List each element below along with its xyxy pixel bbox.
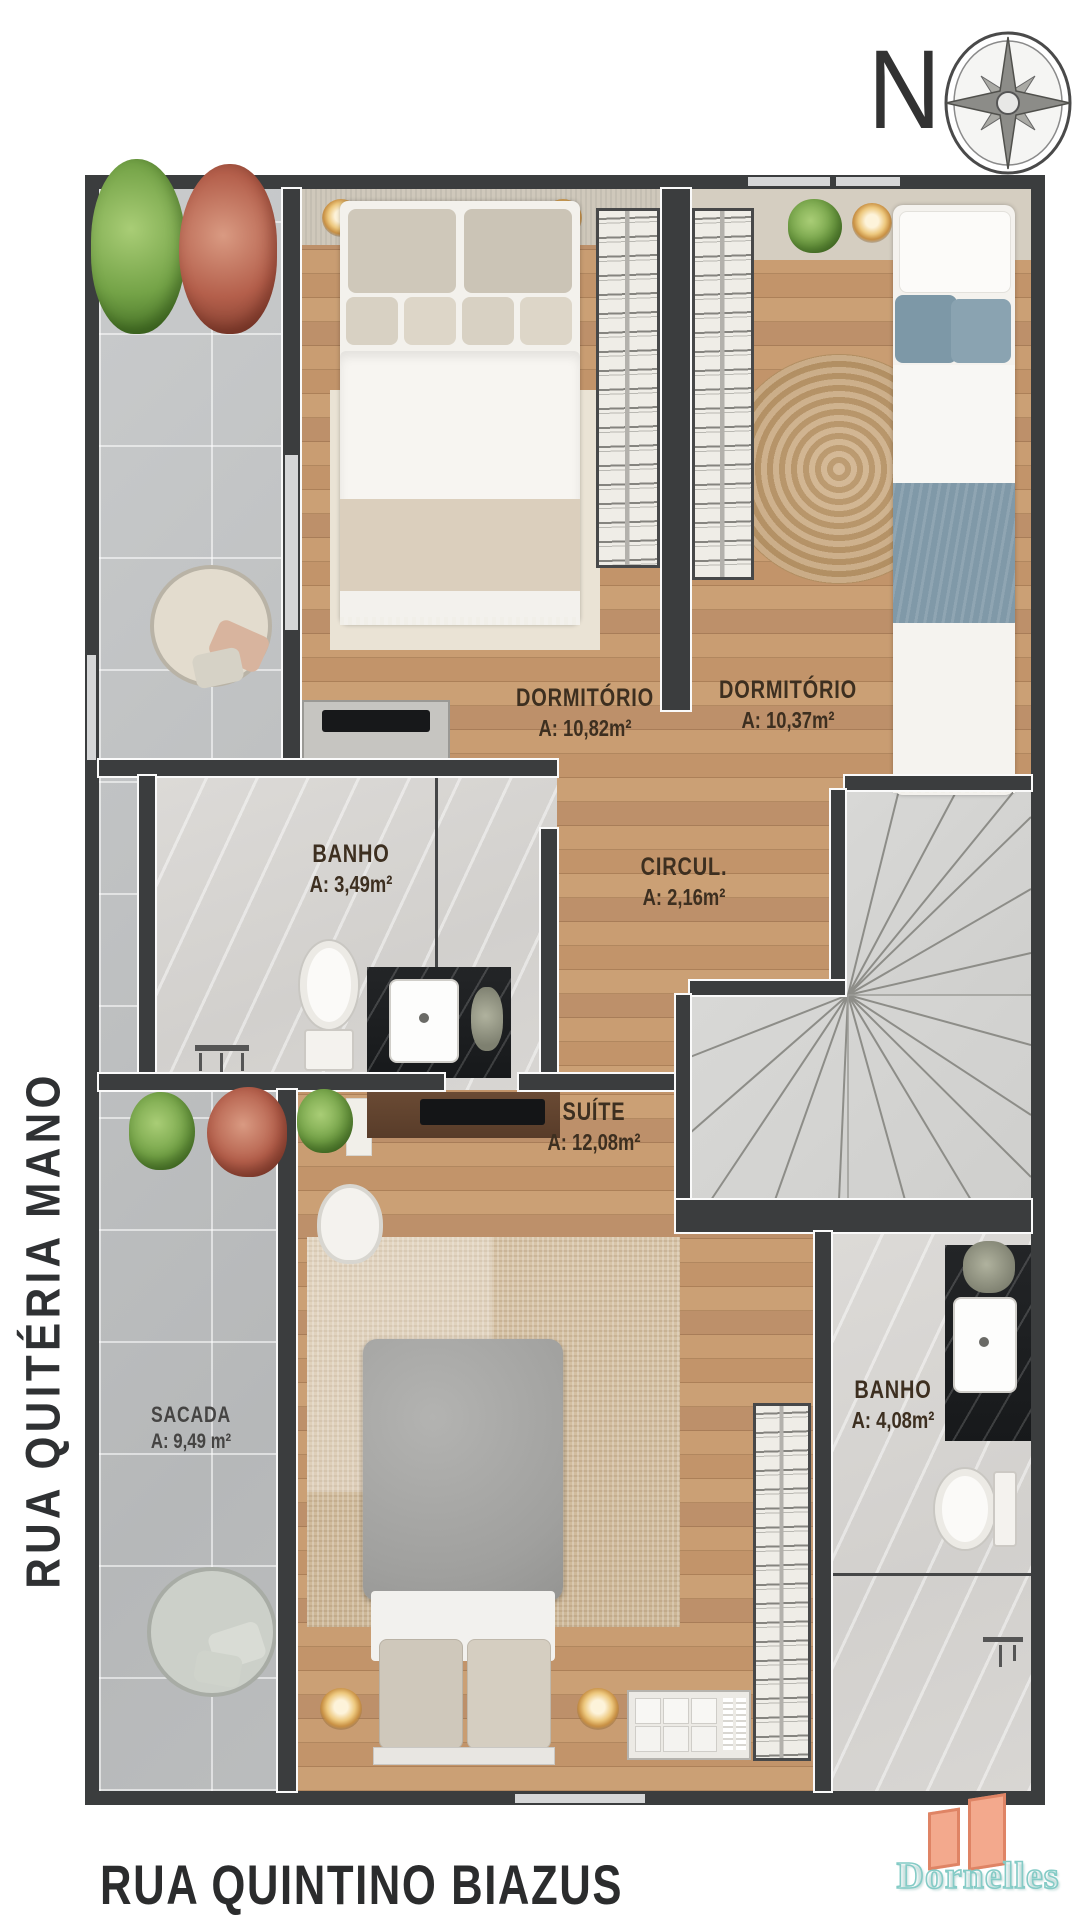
logo-text: Dornelles [888, 1854, 1068, 1898]
bed-blanket [340, 499, 580, 595]
faucet-dot [979, 1337, 989, 1347]
folded-clothes [691, 1698, 717, 1724]
shower-fixture-icon [199, 1053, 202, 1071]
shower-fixture-icon [983, 1637, 1023, 1642]
room-name: SACADA [119, 1401, 263, 1429]
bed-pillow [346, 297, 398, 345]
plant-green-icon [788, 199, 842, 253]
suite-bed [363, 1339, 563, 1763]
plant-green-icon [297, 1089, 353, 1153]
room-area: A: 4,08m² [821, 1406, 965, 1435]
compass: N [868, 28, 1078, 178]
bed-pillow [379, 1639, 463, 1749]
bed-pillow [462, 297, 514, 345]
room-label-banho-1: BANHO A: 3,49m² [279, 839, 423, 899]
room-name: DORMITÓRIO [513, 683, 657, 714]
bathroom1-vanity [367, 967, 511, 1078]
window [87, 655, 96, 760]
shower-partition-line [831, 1573, 1031, 1576]
floor-plan-page: N RUA QUITÉRIA MANO RUA QUINTINO BIAZUS [0, 0, 1080, 1920]
double-bed-1 [340, 201, 580, 625]
bed-frame-foot [373, 1747, 555, 1765]
wall-sconce-icon [852, 203, 892, 243]
shower-fixture-icon [999, 1645, 1002, 1667]
floor-lamp-icon [577, 1688, 619, 1730]
bed-sheet [893, 365, 1015, 483]
bush-green-icon [91, 159, 186, 334]
room-label-dormitorio-2: DORMITÓRIO A: 10,37m² [716, 675, 860, 735]
wall [815, 1232, 831, 1791]
window [836, 177, 900, 186]
street-label-bottom: RUA QUINTINO BIAZUS [100, 1852, 623, 1917]
tv-icon [322, 710, 430, 732]
room-label-sacada: SACADA A: 9,49 m² [119, 1401, 263, 1455]
folded-clothes [663, 1698, 689, 1724]
room-area: A: 10,82m² [513, 714, 657, 743]
shower-fixture-icon [241, 1053, 244, 1071]
bush-red-icon [179, 164, 277, 334]
shower-fixture-icon [1013, 1645, 1016, 1661]
folded-clothes [635, 1726, 661, 1752]
shower-fixture-icon [195, 1045, 249, 1051]
room-name: BANHO [821, 1375, 965, 1406]
bed-pillow [467, 1639, 551, 1749]
folded-clothes [635, 1698, 661, 1724]
stacked-linens [736, 1698, 746, 1750]
wall [845, 776, 1031, 790]
bed-foot-sheet [893, 623, 1015, 785]
compass-rose-icon [938, 28, 1078, 178]
plant-gray-icon [963, 1241, 1015, 1293]
faucet-dot [419, 1013, 429, 1023]
bed-pillow [348, 209, 456, 293]
chair-pillow [193, 1649, 244, 1689]
balcony-glass-door [285, 455, 298, 630]
bed-fringe [340, 617, 580, 625]
wardrobe-suite [753, 1403, 811, 1761]
room-area: A: 10,37m² [716, 706, 860, 735]
room-area: A: 2,16m² [612, 883, 756, 912]
stacked-linens [723, 1698, 733, 1750]
bed-pillow-blue [895, 295, 957, 363]
bed-pillow [404, 297, 456, 345]
wall [99, 1074, 444, 1090]
bed-pillow [464, 209, 572, 293]
round-lounge-chair [147, 1567, 277, 1697]
room-label-suite: SUÍTE A: 12,08m² [522, 1097, 666, 1157]
wall [662, 189, 690, 710]
toilet-tank [993, 1471, 1017, 1547]
desk-chair [317, 1184, 383, 1264]
plant-green-icon [129, 1092, 195, 1170]
toilet-icon [298, 939, 360, 1031]
window [748, 177, 830, 186]
single-bed-2 [893, 205, 1015, 795]
folded-clothes [663, 1726, 689, 1752]
suite-dresser [627, 1690, 751, 1760]
plant-red-icon [207, 1087, 287, 1177]
room-name: SUÍTE [522, 1097, 666, 1128]
floor-lamp-icon [320, 1688, 362, 1730]
room-area: A: 3,49m² [279, 870, 423, 899]
bed-pillow [899, 211, 1011, 293]
street-label-left: RUA QUITÉRIA MANO [17, 1071, 72, 1589]
wall [139, 776, 155, 1090]
bed-pillow [520, 297, 572, 345]
room-label-dormitorio-1: DORMITÓRIO A: 10,82m² [513, 683, 657, 743]
wall [541, 829, 557, 1090]
folded-clothes [691, 1726, 717, 1752]
bed-pillow-blue [951, 299, 1011, 363]
wall [831, 790, 845, 995]
wall [278, 1090, 296, 1791]
room-label-circulacao: CIRCUL. A: 2,16m² [612, 852, 756, 912]
room-name: BANHO [279, 839, 423, 870]
room-name: DORMITÓRIO [716, 675, 860, 706]
tv-cabinet-bed1 [302, 700, 450, 762]
room-area: A: 12,08m² [522, 1128, 666, 1157]
wall [676, 995, 690, 1200]
toilet-tank [304, 1029, 354, 1071]
wall [676, 1200, 1031, 1232]
bed-duvet [340, 351, 580, 511]
window [515, 1794, 645, 1803]
bed-duvet-blue [893, 483, 1015, 623]
wall [690, 981, 845, 995]
plant-gray-icon [471, 987, 503, 1051]
compass-north-label: N [868, 34, 941, 146]
brand-logo: Dornelles [888, 1792, 1068, 1904]
round-lounge-chair [150, 565, 272, 687]
toilet-icon [933, 1467, 997, 1551]
wall [519, 1074, 690, 1090]
room-label-banho-2: BANHO A: 4,08m² [821, 1375, 965, 1435]
room-area: A: 9,49 m² [119, 1429, 263, 1455]
floor-plan: DORMITÓRIO A: 10,82m² DORMITÓRIO A: 10,3… [85, 175, 1045, 1805]
room-name: CIRCUL. [612, 852, 756, 883]
wall [99, 760, 557, 776]
wardrobe-bed1 [596, 208, 660, 568]
bed-duvet-gray [363, 1339, 563, 1601]
wardrobe-bed2 [692, 208, 754, 580]
